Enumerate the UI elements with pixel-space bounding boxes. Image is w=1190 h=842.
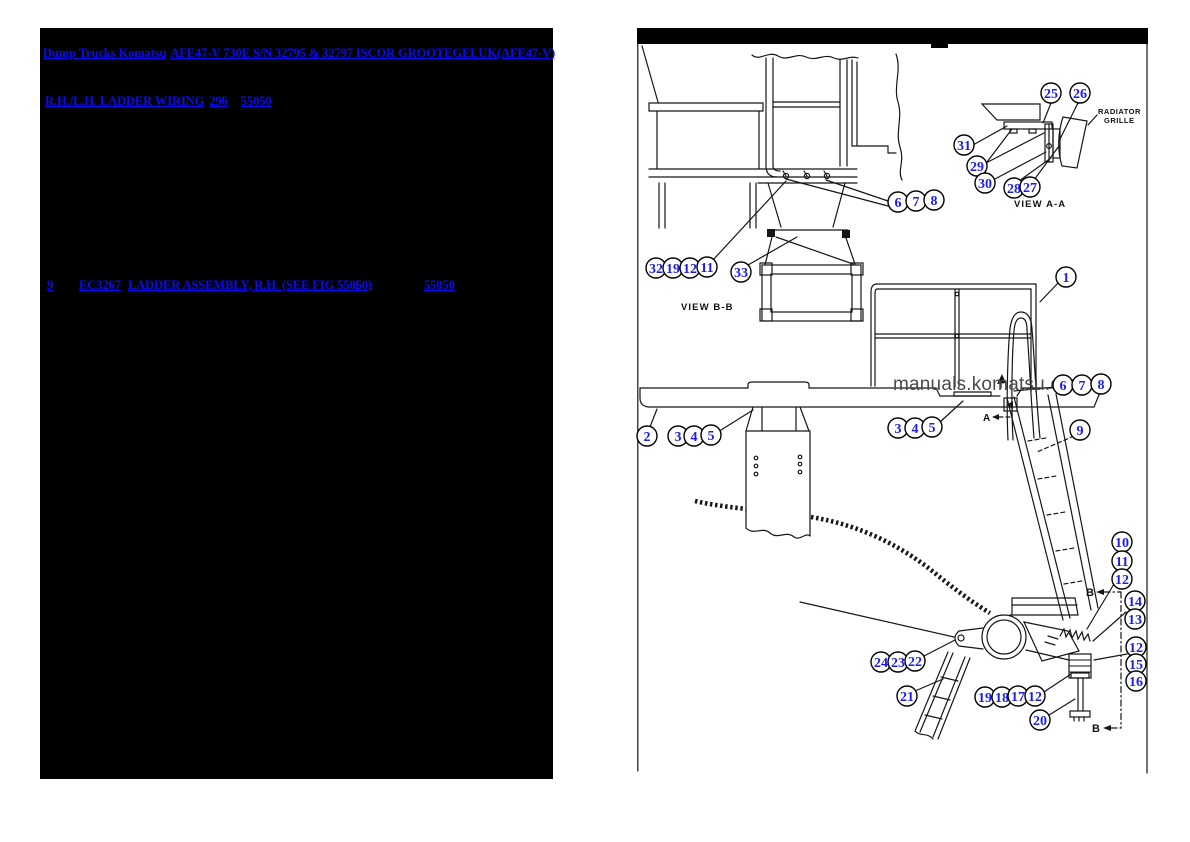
callout-25[interactable]: 25 xyxy=(1041,83,1061,103)
callout-27[interactable]: 27 xyxy=(1020,177,1040,197)
svg-text:11: 11 xyxy=(1115,555,1128,570)
svg-text:2: 2 xyxy=(644,430,651,445)
svg-text:29: 29 xyxy=(970,160,984,175)
parts-diagram: VIEW B-B VIEW A-A RADIATOR GRILLE B B A … xyxy=(0,0,1190,842)
svg-text:16: 16 xyxy=(1129,675,1143,690)
callout-12d[interactable]: 12 xyxy=(1025,686,1045,706)
callout-12b[interactable]: 12 xyxy=(1112,569,1132,589)
svg-text:19: 19 xyxy=(666,262,680,277)
svg-text:4: 4 xyxy=(691,430,698,445)
svg-text:20: 20 xyxy=(1033,714,1047,729)
svg-text:7: 7 xyxy=(913,195,920,210)
svg-text:21: 21 xyxy=(900,690,914,705)
callout-11b[interactable]: 11 xyxy=(1112,551,1132,571)
callout-9[interactable]: 9 xyxy=(1070,420,1090,440)
callout-13[interactable]: 13 xyxy=(1125,609,1145,629)
callout-14[interactable]: 14 xyxy=(1125,591,1145,611)
callout-26[interactable]: 26 xyxy=(1070,83,1090,103)
svg-text:33: 33 xyxy=(734,266,748,281)
callout-22[interactable]: 22 xyxy=(905,651,925,671)
view-aa-drawing xyxy=(973,103,1097,181)
svg-text:26: 26 xyxy=(1073,87,1087,102)
svg-text:25: 25 xyxy=(1044,87,1058,102)
svg-text:17: 17 xyxy=(1011,690,1025,705)
svg-text:31: 31 xyxy=(957,139,971,154)
callout-2[interactable]: 2 xyxy=(637,426,657,446)
svg-text:10: 10 xyxy=(1115,536,1129,551)
svg-text:23: 23 xyxy=(891,656,905,671)
callout-21[interactable]: 21 xyxy=(897,686,917,706)
callout-8[interactable]: 8 xyxy=(924,190,944,210)
svg-text:12: 12 xyxy=(1115,573,1129,588)
callout-5[interactable]: 5 xyxy=(701,425,721,445)
svg-text:4: 4 xyxy=(912,422,919,437)
svg-text:6: 6 xyxy=(895,196,902,211)
view-aa-label: VIEW A-A xyxy=(1014,199,1066,210)
callout-16[interactable]: 16 xyxy=(1126,671,1146,691)
svg-text:12: 12 xyxy=(683,262,697,277)
callout-11[interactable]: 11 xyxy=(697,257,717,277)
svg-text:5: 5 xyxy=(708,429,715,444)
callout-30[interactable]: 30 xyxy=(975,173,995,193)
view-bb-label: VIEW B-B xyxy=(681,302,734,313)
svg-text:19: 19 xyxy=(978,691,992,706)
svg-text:22: 22 xyxy=(908,655,922,670)
section-b-top-label: B xyxy=(1086,587,1094,599)
svg-text:8: 8 xyxy=(1098,378,1105,393)
svg-text:5: 5 xyxy=(929,421,936,436)
svg-text:27: 27 xyxy=(1023,181,1037,196)
svg-text:7: 7 xyxy=(1079,379,1086,394)
callout-5b[interactable]: 5 xyxy=(922,417,942,437)
svg-text:9: 9 xyxy=(1077,424,1084,439)
support-pedestal xyxy=(746,407,810,538)
svg-text:13: 13 xyxy=(1128,613,1142,628)
view-bb-drawing xyxy=(642,46,902,321)
leader-lines xyxy=(650,283,1127,715)
wiring-harness xyxy=(695,501,990,637)
callout-7b[interactable]: 7 xyxy=(1072,375,1092,395)
section-b-markers xyxy=(1096,589,1121,731)
callout-6b[interactable]: 6 xyxy=(1053,375,1073,395)
svg-text:12: 12 xyxy=(1028,690,1042,705)
callout-20[interactable]: 20 xyxy=(1030,710,1050,730)
svg-text:28: 28 xyxy=(1007,182,1021,197)
section-a-label: A xyxy=(983,413,990,424)
svg-text:1: 1 xyxy=(1063,271,1070,286)
svg-text:3: 3 xyxy=(675,430,682,445)
callout-33[interactable]: 33 xyxy=(731,262,751,282)
svg-text:3: 3 xyxy=(895,422,902,437)
callout-10[interactable]: 10 xyxy=(1112,532,1132,552)
radiator-grille-label-2: GRILLE xyxy=(1104,116,1135,125)
svg-text:32: 32 xyxy=(649,262,663,277)
svg-text:14: 14 xyxy=(1128,595,1142,610)
radiator-grille-label-1: RADIATOR xyxy=(1098,107,1141,116)
svg-text:24: 24 xyxy=(874,656,888,671)
callout-8b[interactable]: 8 xyxy=(1091,374,1111,394)
callout-6[interactable]: 6 xyxy=(888,192,908,212)
svg-text:11: 11 xyxy=(700,261,713,276)
svg-text:8: 8 xyxy=(931,194,938,209)
svg-text:18: 18 xyxy=(995,691,1009,706)
callout-31[interactable]: 31 xyxy=(954,135,974,155)
section-b-bottom-label: B xyxy=(1092,723,1100,735)
callout-7[interactable]: 7 xyxy=(906,191,926,211)
svg-text:6: 6 xyxy=(1060,379,1067,394)
svg-text:30: 30 xyxy=(978,177,992,192)
callout-1[interactable]: 1 xyxy=(1056,267,1076,287)
parts-catalog-page: Dump Trucks KomatsuAFE47-V 730E S/N 3279… xyxy=(0,0,1190,842)
